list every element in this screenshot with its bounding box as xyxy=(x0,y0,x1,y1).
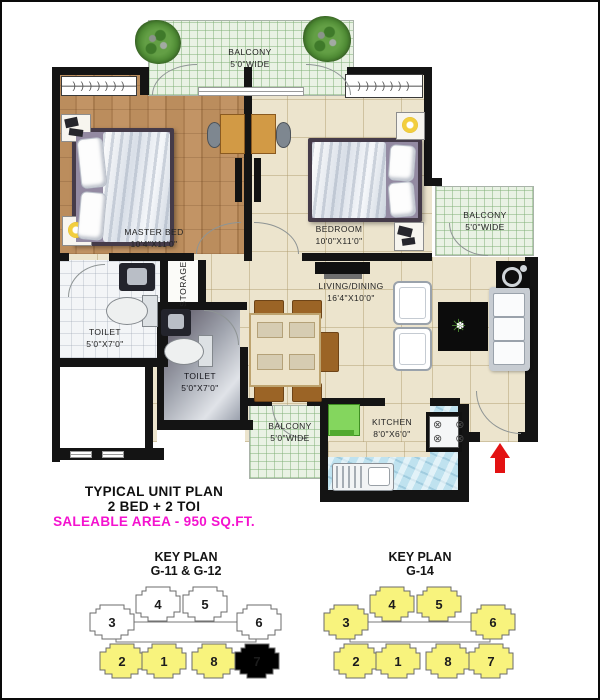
pillow xyxy=(388,181,417,218)
armchair-cushion xyxy=(399,333,426,365)
blanket xyxy=(312,142,386,218)
key-plan-title-line2: G-14 xyxy=(322,564,518,578)
key-plan-corridor xyxy=(350,622,490,642)
key-plan-unit: 8 xyxy=(426,644,470,678)
wall xyxy=(140,67,149,95)
drainboard xyxy=(336,466,364,488)
unit-number: 8 xyxy=(210,654,217,669)
key-plan-title-line1: KEY PLAN xyxy=(322,550,518,564)
unit-number: 2 xyxy=(352,654,359,669)
wardrobe-hangers: ) ) ) ) ) ) ) xyxy=(345,74,423,98)
unit-number: 4 xyxy=(154,597,162,612)
floor-plan-page: ) ) ) ) ) ) ) ) ) ) ) ) ) ) xyxy=(0,0,600,700)
key-plan-2-title: KEY PLAN G-14 xyxy=(322,550,518,579)
tv-console xyxy=(315,262,370,274)
entry-arrow-icon xyxy=(495,458,505,473)
stove-burners: ⊗ ⊗ xyxy=(433,434,470,445)
open-door-leaf xyxy=(235,158,242,202)
unit-number: 7 xyxy=(487,654,494,669)
shower-unit-inner xyxy=(127,268,147,285)
pillow xyxy=(76,137,107,189)
wall xyxy=(302,253,432,261)
open-door-leaf xyxy=(254,158,261,202)
armchair xyxy=(393,327,432,371)
key-plan-unit: 1 xyxy=(142,644,186,678)
sofa-cushion xyxy=(493,293,525,317)
balcony-railing-window xyxy=(198,87,304,96)
room-name: BALCONY xyxy=(228,46,271,58)
key-plan-title-line2: G-11 & G-12 xyxy=(88,564,284,578)
key-plan-unit: 4 xyxy=(370,587,414,621)
wall xyxy=(52,67,60,462)
balcony-top-label: BALCONY 5'0"WIDE xyxy=(228,46,271,71)
key-plan-unit: 2 xyxy=(100,644,144,678)
kitchen-label: KITCHEN 8'0"X6'0" xyxy=(372,416,412,441)
placemat xyxy=(257,354,283,370)
wall xyxy=(240,347,248,422)
plan-caption: TYPICAL UNIT PLAN 2 BED + 2 TOI SALEABLE… xyxy=(42,484,266,531)
room-dim: 10'4"X11'0" xyxy=(124,238,183,250)
key-plan-unit: 6 xyxy=(237,605,281,639)
caption-line2: 2 BED + 2 TOI xyxy=(42,499,266,514)
shaft-floor xyxy=(59,367,145,448)
unit-number: 6 xyxy=(255,615,262,630)
unit-number: 6 xyxy=(489,615,496,630)
toilet1-label: TOILET 5'0"X7'0" xyxy=(86,326,123,351)
room-name: BEDROOM xyxy=(315,223,362,235)
key-plan-unit: 7 xyxy=(469,644,513,678)
unit-number: 2 xyxy=(118,654,125,669)
placemat xyxy=(257,322,283,338)
wardrobe-hangers: ) ) ) ) ) ) ) xyxy=(61,76,137,96)
storage-label: STORAGE xyxy=(178,249,188,319)
room-name: LIVING/DINING xyxy=(318,280,383,292)
key-plan-unit: 1 xyxy=(376,644,420,678)
key-plan-unit: 6 xyxy=(471,605,515,639)
key-plan-unit: 5 xyxy=(183,587,227,621)
wall xyxy=(244,67,252,261)
wall xyxy=(52,67,148,75)
key-plan-unit: 8 xyxy=(192,644,236,678)
shaft-window xyxy=(70,451,92,458)
room-dim: 5'0"WIDE xyxy=(228,58,271,70)
key-plan-2-diagram: 4 5 3 6 2 1 8 7 xyxy=(322,586,518,684)
master-bed-label: MASTER BED 10'4"X11'0" xyxy=(124,226,183,251)
key-plan-corridor xyxy=(116,622,256,642)
unit-number: 8 xyxy=(444,654,451,669)
study-desk xyxy=(220,114,245,154)
room-dim: 5'0"X7'0" xyxy=(181,382,218,394)
unit-number: 5 xyxy=(201,597,208,612)
sofa-cushion xyxy=(493,341,525,365)
key-plan-1-title: KEY PLAN G-11 & G-12 xyxy=(88,550,284,579)
wall xyxy=(145,367,153,450)
unit-number: 1 xyxy=(394,654,401,669)
room-dim: 16'4"X10'0" xyxy=(318,292,383,304)
room-dim: 8'0"X6'0" xyxy=(372,428,412,440)
plant-icon: ✳ ✽ xyxy=(451,314,475,338)
bedroom-label: BEDROOM 10'0"X11'0" xyxy=(315,223,362,248)
key-plan-unit: 5 xyxy=(417,587,461,621)
study-desk xyxy=(251,114,276,154)
plant-flower: ✽ xyxy=(456,315,464,339)
unit-number: 3 xyxy=(342,615,349,630)
lamp-icon xyxy=(402,117,418,133)
shaft-window xyxy=(102,451,124,458)
caption-line3: SALEABLE AREA - 950 SQ.FT. xyxy=(42,514,266,531)
wall xyxy=(52,253,69,261)
speaker-icon xyxy=(502,267,522,287)
living-dining-label: LIVING/DINING 16'4"X10'0" xyxy=(318,280,383,305)
wall xyxy=(518,432,538,442)
key-plan-unit: 4 xyxy=(136,587,180,621)
tree-icon xyxy=(135,20,181,64)
toilet2-label: TOILET 5'0"X7'0" xyxy=(181,370,218,395)
key-plan-title-line1: KEY PLAN xyxy=(88,550,284,564)
room-name: MASTER BED xyxy=(124,226,183,238)
speaker-icon xyxy=(520,265,527,272)
unit-number: 1 xyxy=(160,654,167,669)
sofa-cushion xyxy=(493,317,525,341)
unit-number: 7 xyxy=(253,654,260,669)
room-name: KITCHEN xyxy=(372,416,412,428)
wall xyxy=(52,358,168,367)
armchair xyxy=(393,281,432,325)
toilet-bowl xyxy=(106,297,148,325)
outside-mask xyxy=(157,430,245,446)
refrigerator-base xyxy=(330,430,354,436)
balcony-bottom-label: BALCONY 5'0"WIDE xyxy=(268,420,311,445)
desk-chair xyxy=(276,122,291,148)
unit-number: 3 xyxy=(108,615,115,630)
wall xyxy=(320,404,328,492)
key-plan-unit: 2 xyxy=(334,644,378,678)
room-name: TOILET xyxy=(181,370,218,382)
wall xyxy=(320,490,469,502)
room-dim: 10'0"X11'0" xyxy=(315,235,362,247)
entry-arrow-icon xyxy=(490,443,510,458)
placemat xyxy=(289,322,315,338)
armchair-cushion xyxy=(399,287,426,319)
key-plan-unit: 7 xyxy=(235,644,279,678)
placemat xyxy=(289,354,315,370)
room-name: TOILET xyxy=(86,326,123,338)
pillow xyxy=(388,144,416,182)
caption-line1: TYPICAL UNIT PLAN xyxy=(42,484,266,499)
key-plan-1-diagram: 4 5 3 6 2 1 8 7 xyxy=(88,586,284,684)
room-dim: 5'0"WIDE xyxy=(268,432,311,444)
unit-number: 4 xyxy=(388,597,396,612)
room-name: BALCONY xyxy=(463,209,506,221)
unit-number: 5 xyxy=(435,597,442,612)
tv-console-shelf xyxy=(324,274,362,279)
wall xyxy=(424,178,442,186)
tree-icon xyxy=(303,16,351,62)
key-plan-unit: 3 xyxy=(90,605,134,639)
toilet-bowl xyxy=(164,338,204,365)
stove-burners: ⊗ ⊗ xyxy=(433,420,470,431)
wall xyxy=(157,420,253,430)
wall xyxy=(424,67,432,185)
pillow xyxy=(77,191,107,241)
balcony-right-label: BALCONY 5'0"WIDE xyxy=(463,209,506,234)
room-dim: 5'0"X7'0" xyxy=(86,338,123,350)
key-plan-unit: 3 xyxy=(324,605,368,639)
wall xyxy=(430,398,460,406)
room-dim: 5'0"WIDE xyxy=(463,221,506,233)
room-name: BALCONY xyxy=(268,420,311,432)
sink-basin xyxy=(368,467,390,486)
